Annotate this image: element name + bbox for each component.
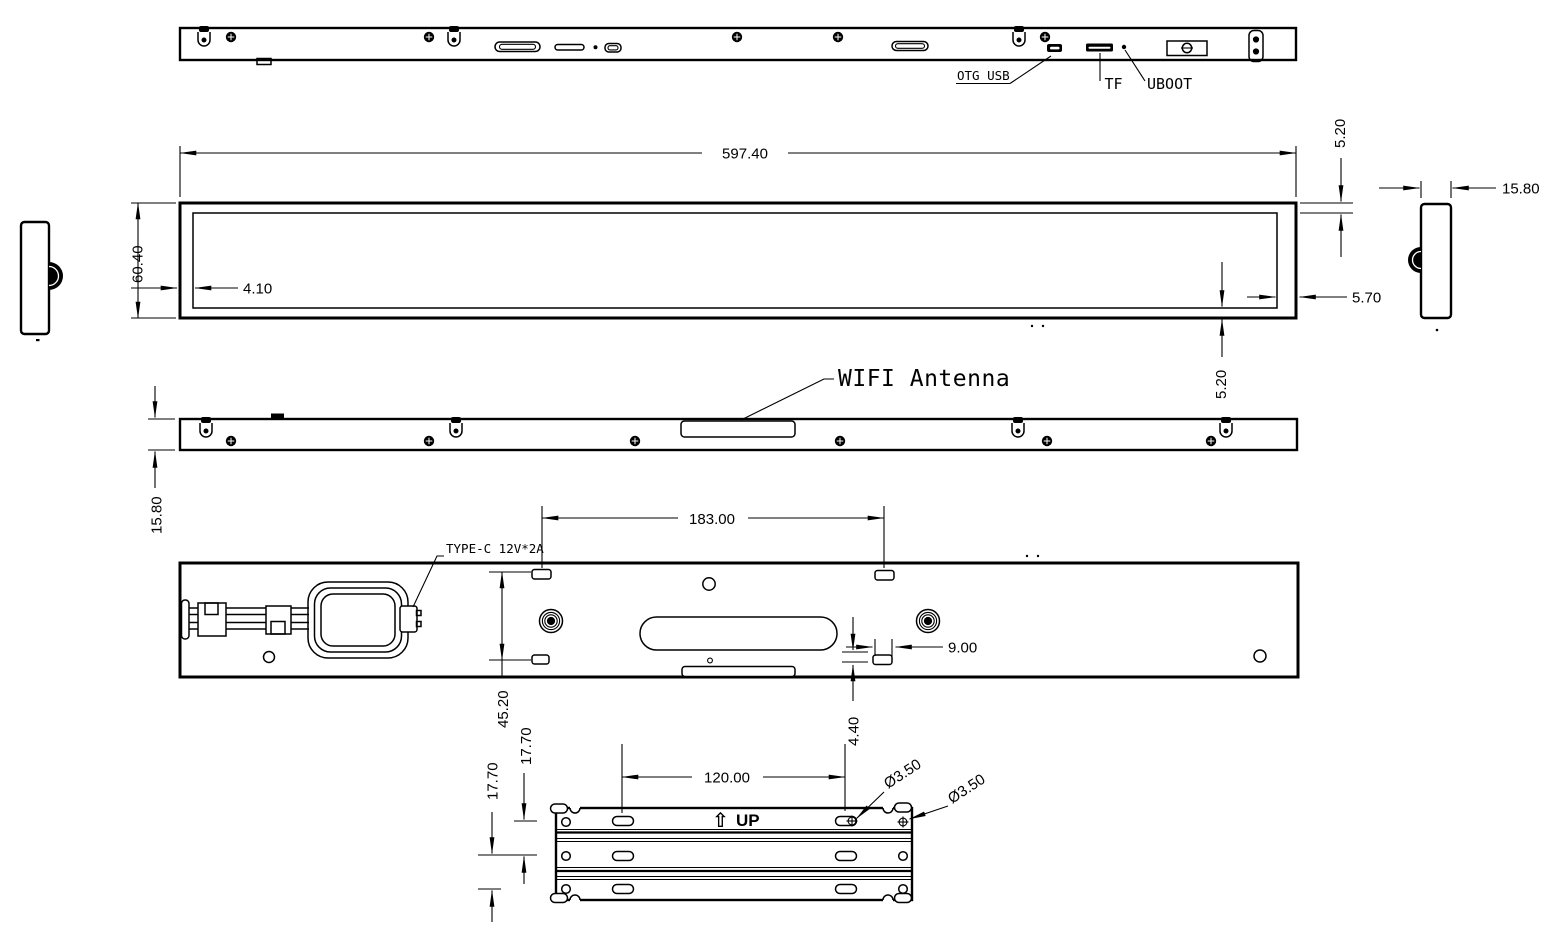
dim-bezel-bottom-text: 5.20 — [1213, 370, 1230, 399]
screw-icon — [1042, 436, 1052, 446]
dim-bezel-top: 5.20 — [1300, 119, 1353, 257]
wifi-antenna-slot — [681, 421, 795, 437]
front-outer-frame — [180, 203, 1296, 318]
drawing-canvas: OTG USB TF UBOOT 597.40 60.40 — [0, 0, 1566, 937]
up-arrow-icon: ⇧ — [712, 808, 729, 832]
dim-bottom-thickness: 15.80 — [148, 386, 175, 534]
left-side-view — [21, 222, 63, 341]
screw-icon — [226, 32, 236, 42]
screw-icon — [732, 32, 742, 42]
dim-row-pitch-upper: 17.70 — [478, 727, 537, 884]
hook-tab-icon — [1013, 26, 1025, 46]
top-tab — [271, 414, 284, 420]
wifi-antenna-label: WIFI Antenna — [838, 366, 1010, 392]
dim-bezel-bottom: 5.20 — [1213, 262, 1230, 399]
screen-opening — [193, 213, 1277, 308]
dim-side-thickness: 15.80 — [1379, 181, 1540, 199]
corner-ear — [895, 803, 912, 812]
callout-hole-diameter-2: Ø3.50 — [910, 771, 989, 819]
side-connector-bump — [1408, 247, 1421, 273]
tf-card-slot — [1086, 44, 1113, 52]
dim-row-pitch-lower-text: 17.70 — [485, 762, 502, 800]
type-c-callout: TYPE-C 12V*2A — [413, 541, 544, 607]
keyhole-mount — [917, 610, 940, 633]
dim-tab-offset-text: 4.40 — [846, 717, 863, 746]
dim-tab-offset: 4.40 — [842, 617, 868, 746]
small-hole — [264, 652, 275, 663]
screw-icon — [630, 436, 640, 446]
oval-slot — [613, 852, 634, 861]
corner-ear — [895, 894, 912, 903]
flat-port-slot — [555, 45, 584, 51]
pin-hole — [708, 658, 713, 663]
bracket-body — [556, 808, 912, 900]
bracket-slot — [532, 570, 551, 580]
hook-tab-icon — [450, 417, 462, 437]
print-speck — [1031, 325, 1044, 327]
type-c-label: TYPE-C 12V*2A — [446, 541, 544, 556]
bracket-rails — [557, 830, 912, 880]
dim-mount-slot-spacing-text: 183.00 — [689, 511, 735, 528]
top-edge-view: OTG USB TF UBOOT — [180, 26, 1296, 93]
back-body — [180, 563, 1298, 677]
dim-bezel-right-text: 5.70 — [1352, 290, 1381, 307]
screw-icon — [835, 436, 845, 446]
mounting-bracket-view: ⇧ UP 120.00 17.70 17.70 Ø3.50 — [478, 727, 988, 922]
hole-diameter-1-text: Ø3.50 — [881, 756, 925, 793]
print-speck — [1436, 329, 1439, 332]
dim-overall-height: 60.40 — [130, 203, 177, 318]
power-cable — [182, 582, 422, 658]
dim-row-pitch-lower: 17.70 — [478, 762, 502, 922]
screw-icon — [424, 32, 434, 42]
hook-tab-icon — [1012, 417, 1024, 437]
oval-slot — [613, 817, 634, 826]
keyhole-mount — [540, 610, 563, 633]
otg-usb-port — [1047, 44, 1062, 52]
side-bracket — [1249, 31, 1263, 62]
dim-bezel-right: 5.70 — [1247, 290, 1381, 307]
dim-hole-spacing: 120.00 — [622, 744, 845, 813]
handle-slot — [640, 617, 837, 650]
round-hole — [899, 885, 908, 894]
round-hole — [562, 818, 571, 827]
back-view: TYPE-C 12V*2A 183.00 45.20 — [180, 506, 1298, 746]
uboot-hole — [1122, 45, 1126, 49]
cross-marked-hole — [898, 817, 909, 828]
left-side-body — [21, 222, 49, 334]
right-side-body — [1421, 204, 1451, 318]
hook-tab-icon — [1220, 417, 1232, 437]
front-view: 597.40 60.40 4.10 5.20 5.70 5 — [130, 119, 1382, 399]
hook-tab-icon — [448, 26, 460, 46]
dim-mount-slot-spacing: 183.00 — [542, 506, 884, 568]
screw-icon — [833, 32, 843, 42]
pin-hole — [594, 45, 598, 49]
bottom-edge-view: WIFI Antenna 15.80 — [148, 366, 1297, 534]
bottom-flat-tab — [682, 667, 795, 677]
hook-tab-icon — [198, 26, 210, 46]
up-label: UP — [736, 811, 760, 830]
dim-side-thickness-text: 15.80 — [1502, 181, 1540, 198]
corner-ear — [551, 804, 568, 813]
cable-clip — [266, 606, 291, 634]
side-connector-bump — [49, 262, 63, 290]
small-hole — [1254, 650, 1266, 662]
dim-bezel-left: 4.10 — [131, 281, 272, 298]
hole-diameter-2-text: Ø3.50 — [945, 771, 989, 808]
dim-mount-height-text: 45.20 — [495, 690, 512, 728]
oval-slot — [836, 885, 857, 894]
corner-ear — [551, 894, 568, 903]
round-hole — [562, 852, 571, 861]
hook-tab-icon — [200, 417, 212, 437]
tf-label: TF — [1105, 75, 1123, 93]
round-hole — [899, 852, 908, 861]
dim-slot-inset-text: 9.00 — [948, 640, 977, 657]
dim-slot-inset: 9.00 — [846, 639, 977, 657]
dim-bottom-thickness-text: 15.80 — [149, 496, 166, 534]
vent-slot — [892, 42, 928, 51]
dim-bezel-left-text: 4.10 — [243, 281, 272, 298]
bracket-slot — [532, 655, 549, 664]
round-hole — [562, 885, 571, 894]
otg-usb-label: OTG USB — [957, 68, 1010, 83]
oval-slot — [836, 852, 857, 861]
screw-cutout — [1167, 41, 1207, 56]
screw-icon — [1040, 32, 1050, 42]
dim-bezel-top-text: 5.20 — [1332, 119, 1349, 148]
screw-icon — [1206, 436, 1216, 446]
screw-icon — [226, 436, 236, 446]
dim-mount-height: 45.20 — [489, 572, 531, 728]
small-port — [605, 44, 621, 53]
screw-icon — [424, 436, 434, 446]
edge-notch — [570, 806, 893, 903]
bracket-slot — [875, 571, 894, 581]
small-hole — [703, 578, 715, 590]
bottom-view-body — [180, 419, 1297, 450]
uboot-label: UBOOT — [1147, 75, 1192, 93]
oval-slot — [613, 885, 634, 894]
dim-overall-width: 597.40 — [180, 146, 1296, 198]
type-c-connector — [400, 606, 421, 632]
cable-clip — [198, 603, 226, 636]
dim-hole-spacing-text: 120.00 — [704, 770, 750, 787]
dim-overall-width-text: 597.40 — [722, 146, 768, 163]
dim-row-pitch-upper-text: 17.70 — [518, 727, 535, 765]
dim-overall-height-text: 60.40 — [130, 245, 147, 283]
uboot-callout: UBOOT — [1125, 50, 1192, 93]
bracket-slot — [873, 655, 892, 665]
right-side-view: 15.80 — [1379, 181, 1540, 332]
wifi-antenna-callout: WIFI Antenna — [741, 366, 1010, 420]
print-speck — [1026, 555, 1039, 557]
print-speck — [36, 339, 40, 341]
vent-slot — [495, 42, 540, 52]
cable-coil — [308, 582, 408, 658]
engineering-drawing-sheet: OTG USB TF UBOOT 597.40 60.40 — [0, 0, 1566, 937]
